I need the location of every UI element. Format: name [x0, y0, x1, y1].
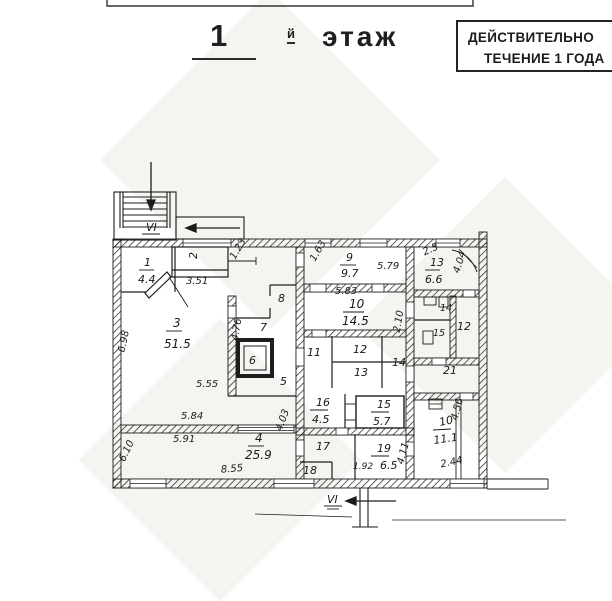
floor-word: этаж — [322, 21, 398, 53]
floor-number: 1 — [210, 18, 227, 54]
room-number: 21 — [443, 364, 457, 377]
dimension: 1.92 — [353, 462, 373, 472]
room-number: 4 — [255, 431, 263, 445]
room-area: 6.6 — [425, 273, 443, 286]
validity-stamp: ДЕЙСТВИТЕЛЬНО ТЕЧЕНИЕ 1 ГОДА — [456, 20, 612, 72]
dimension: 5.83 — [335, 286, 357, 297]
room-number: 1 — [144, 256, 151, 269]
room-number: 11 — [307, 346, 321, 359]
room-number: 10 — [349, 297, 365, 311]
stamp-line-1: ДЕЙСТВИТЕЛЬНО — [468, 28, 612, 49]
dimension: 5.91 — [173, 434, 195, 445]
room-number: 15 — [433, 328, 445, 339]
entry-stairs — [114, 192, 244, 240]
room-number: 7 — [260, 321, 267, 334]
room-number: 13 — [354, 366, 368, 379]
room-number: 8 — [278, 292, 285, 305]
arrow-left-icon — [346, 497, 356, 505]
floor-plan: VI VI 1 4.4 2 3 51.5 4 25.9 5 6 7 8 9 9.… — [0, 0, 612, 600]
dimension: 4.04 — [452, 250, 469, 275]
room-area: 4.5 — [312, 413, 330, 426]
scanned-floor-plan-page: { "header": { "floor_number": "1", "floo… — [0, 0, 612, 600]
dimension: 2.44 — [439, 455, 463, 470]
room-number: 14 — [392, 356, 406, 369]
floor-suffix: й — [287, 26, 295, 44]
room-number: 6 — [249, 354, 256, 367]
dimension: 5.79 — [377, 261, 399, 272]
dimension-labels: 3.51 1.23 1.63 5.79 5.83 2.5 4.04 6.98 4… — [117, 237, 469, 476]
room-area: 9.7 — [341, 267, 359, 280]
stair-label-bottom: VI — [327, 493, 338, 506]
room-area: 51.5 — [164, 337, 191, 351]
room-number: 5 — [280, 375, 287, 388]
floor-number-underline — [192, 58, 256, 60]
room-number: 14 — [440, 303, 452, 314]
dimension: 5.55 — [196, 379, 218, 390]
room-number: 2 — [187, 252, 200, 259]
dimension: 4.56 — [449, 397, 465, 421]
room-number: 12 — [457, 320, 471, 333]
room-number: 17 — [316, 440, 330, 453]
room-number: 19 — [377, 442, 391, 455]
room-area: 14.5 — [342, 314, 369, 328]
room-area: 11.1 — [433, 431, 459, 447]
room-area: 25.9 — [245, 448, 272, 462]
room-area: 6.5 — [380, 459, 398, 472]
arrow-left-icon — [186, 224, 196, 232]
stamp-line-2: ТЕЧЕНИЕ 1 ГОДА — [468, 49, 612, 70]
top-partial-frame — [107, 0, 473, 6]
rear-stairs — [352, 488, 378, 527]
stair-label-top: VI — [146, 221, 157, 234]
room-number: 13 — [430, 256, 444, 269]
dimension: 5.84 — [181, 411, 203, 422]
room-number: 18 — [303, 464, 317, 477]
dimension: 3.51 — [186, 276, 208, 287]
room-number: 15 — [377, 398, 391, 411]
room-number: 9 — [346, 251, 353, 264]
room-number: 12 — [353, 343, 367, 356]
room-number: 16 — [316, 396, 330, 409]
dimension: 8.55 — [220, 463, 243, 476]
room-area: 5.7 — [373, 415, 391, 428]
room-area: 4.4 — [138, 273, 156, 286]
room-number: 3 — [173, 316, 181, 330]
